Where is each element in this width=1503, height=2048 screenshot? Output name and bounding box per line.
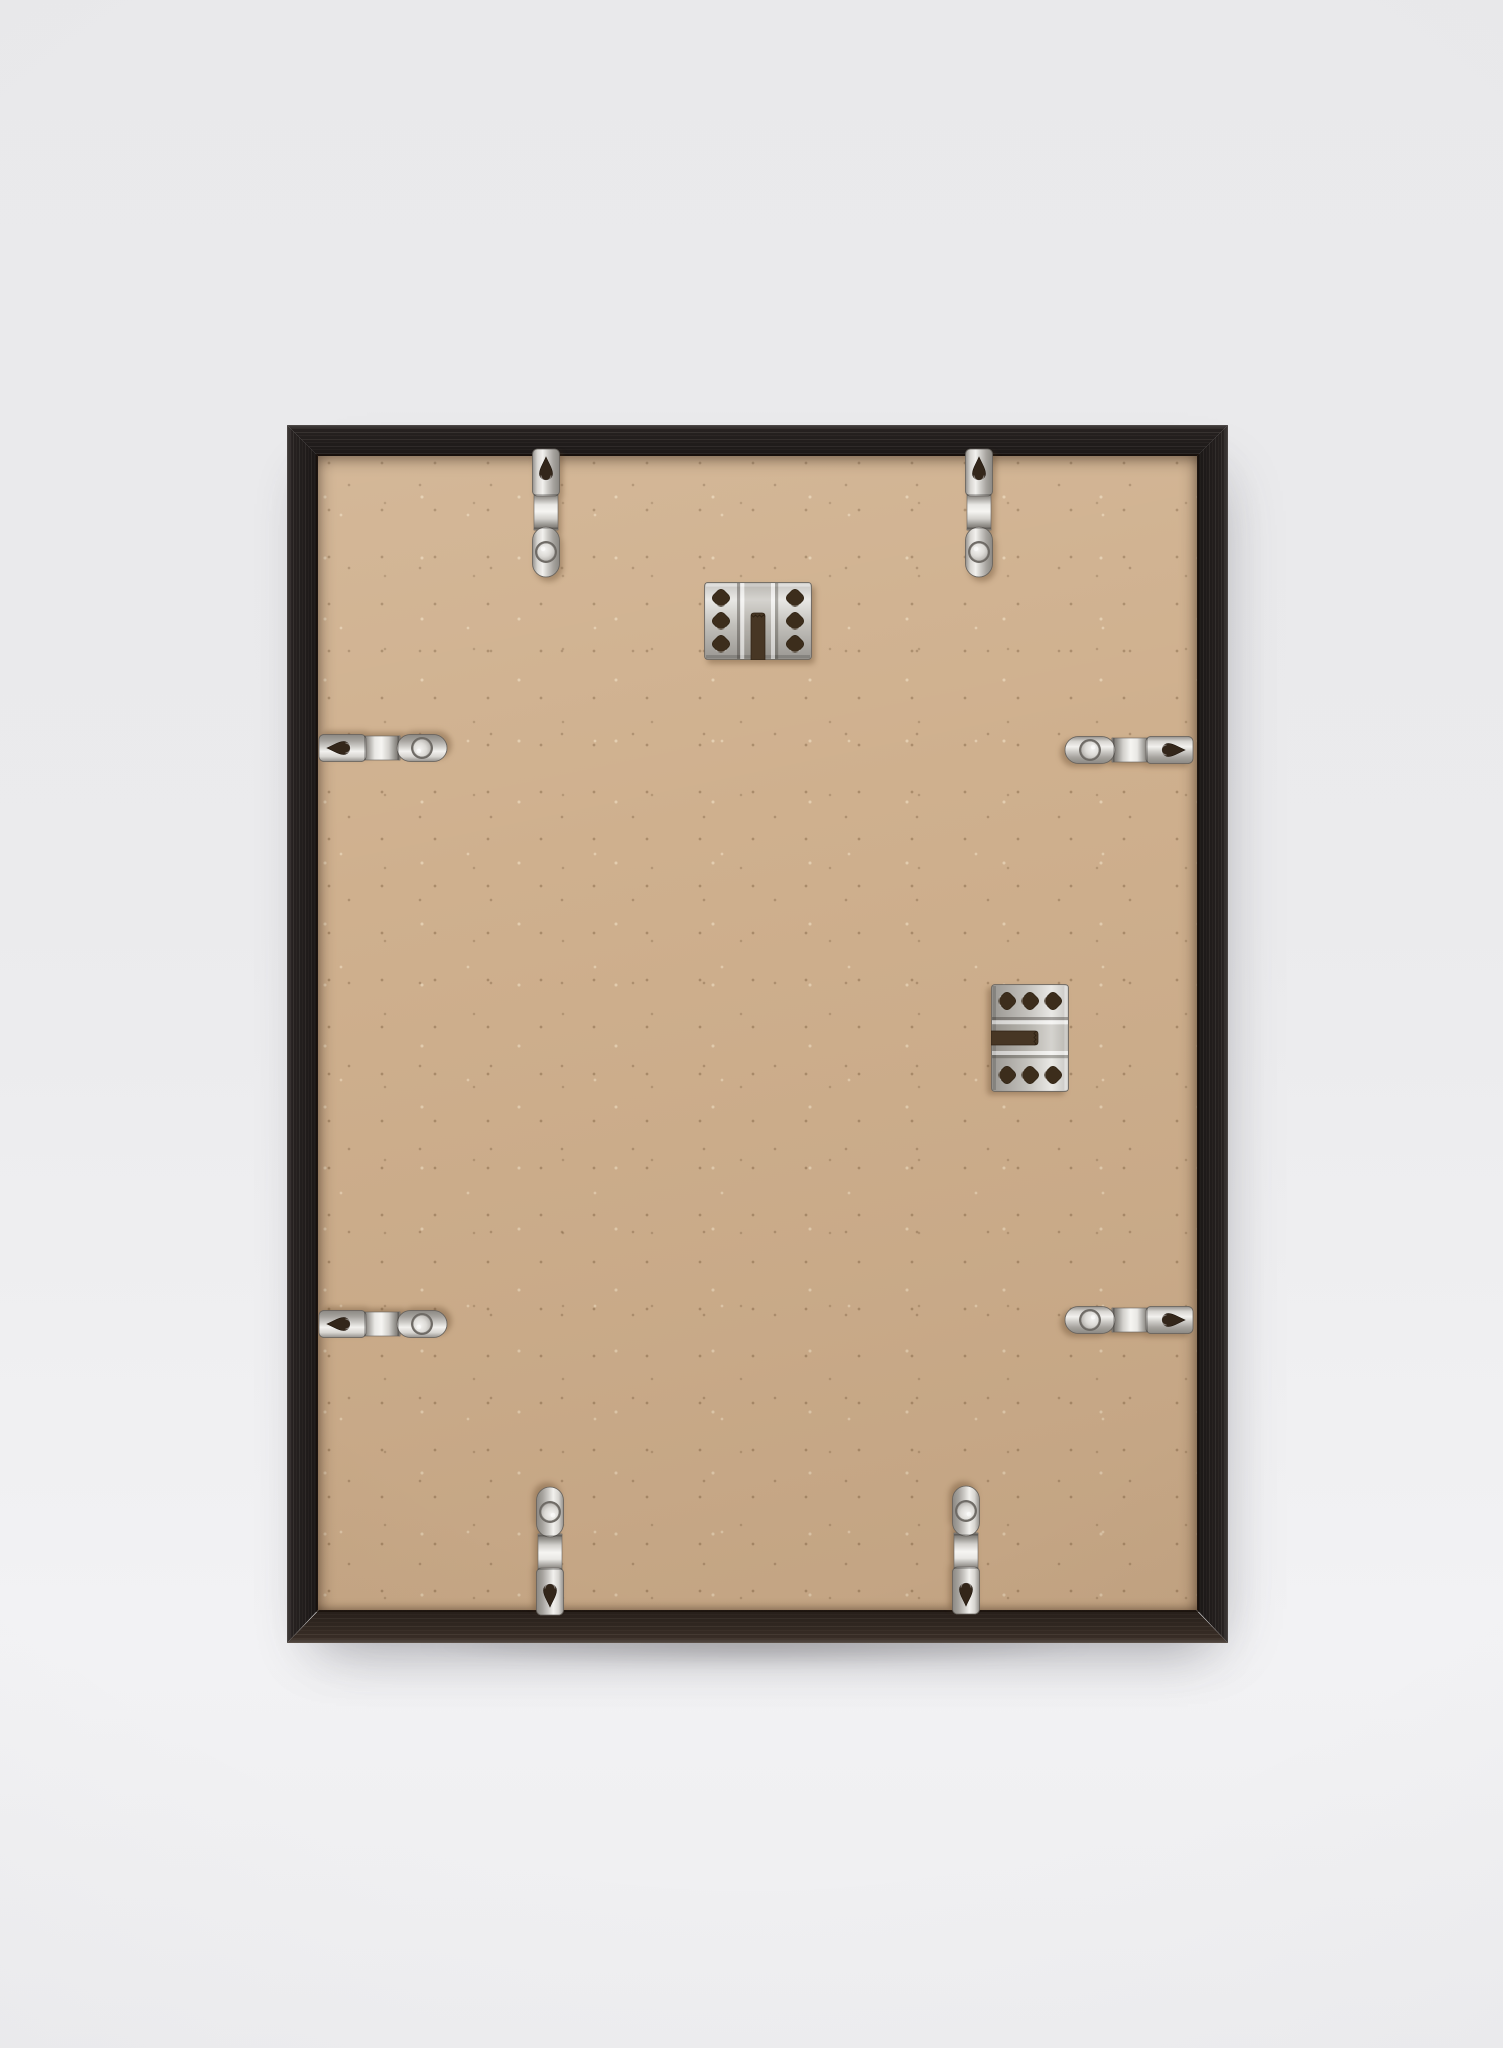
frame-rail-right [1197,425,1228,1643]
spring-clip-right-lower [1064,1303,1194,1337]
hanger-plate-right-middle [991,984,1069,1092]
frame-rail-bottom [287,1610,1228,1643]
hanger-plate-top-center [704,582,812,660]
spring-clip-left-lower [318,1307,448,1341]
spring-clip-top-right [962,448,996,578]
frame-rail-left [287,425,318,1643]
frame-rail-top [287,425,1228,456]
spring-clip-bottom-left [533,1486,567,1616]
spring-clip-top-left [529,448,563,578]
spring-clip-right-upper [1064,733,1194,767]
spring-clip-bottom-right [949,1485,983,1615]
photo-backdrop [0,0,1503,2048]
spring-clip-left-upper [318,731,448,765]
picture-frame-back [287,425,1228,1643]
